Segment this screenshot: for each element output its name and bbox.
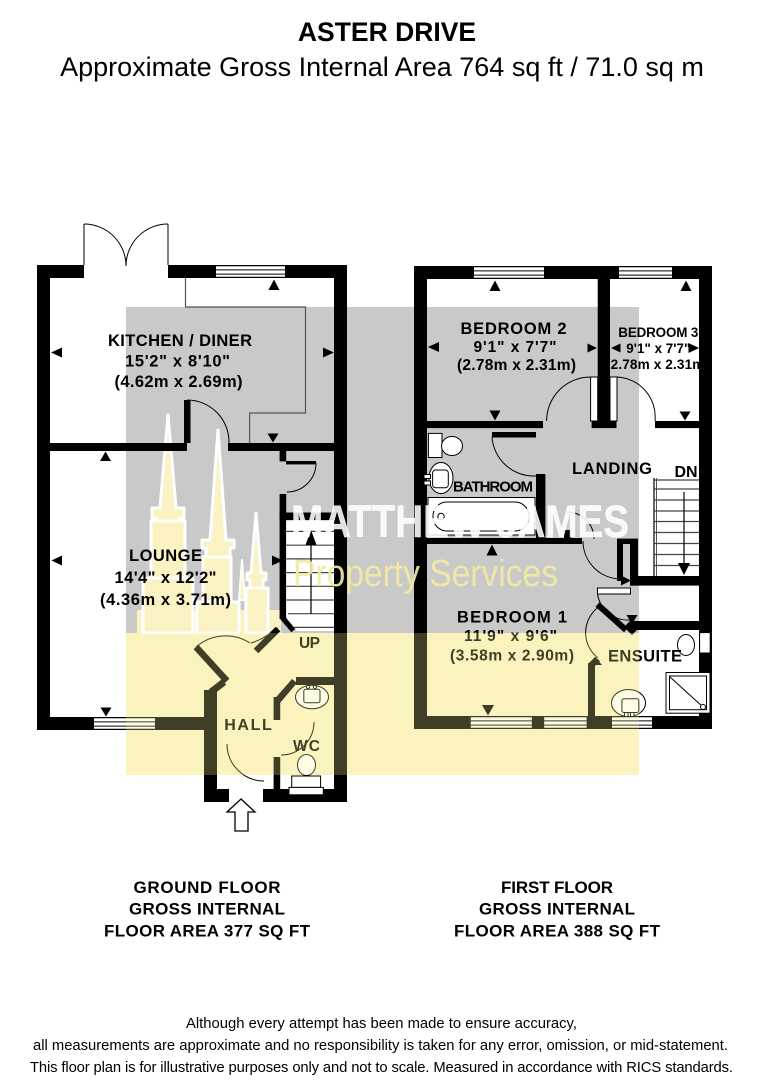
- svg-text:BEDROOM 2: BEDROOM 2: [461, 320, 567, 338]
- svg-text:(4.36m x 3.71m): (4.36m x 3.71m): [100, 591, 231, 609]
- svg-text:BATHROOM: BATHROOM: [453, 479, 533, 496]
- svg-text:MATTHEW JAMES: MATTHEW JAMES: [291, 496, 629, 547]
- svg-text:FLOOR AREA 377 SQ FT: FLOOR AREA 377 SQ FT: [104, 922, 311, 941]
- svg-text:all measurements are approxima: all measurements are approximate and no …: [33, 1038, 728, 1054]
- svg-text:BEDROOM 1: BEDROOM 1: [457, 609, 567, 627]
- svg-text:This floor plan is for illustr: This floor plan is for illustrative purp…: [30, 1060, 733, 1076]
- svg-text:KITCHEN / DINER: KITCHEN / DINER: [108, 332, 252, 350]
- svg-text:ASTER DRIVE: ASTER DRIVE: [298, 17, 476, 47]
- svg-text:15'2" x 8'10": 15'2" x 8'10": [125, 353, 230, 371]
- svg-text:9'1" x 7'7": 9'1" x 7'7": [626, 341, 690, 356]
- svg-text:FLOOR AREA 388 SQ FT: FLOOR AREA 388 SQ FT: [454, 922, 661, 941]
- svg-text:BEDROOM 3: BEDROOM 3: [618, 325, 698, 340]
- svg-text:DN: DN: [674, 464, 697, 481]
- svg-text:Although every attempt has bee: Although every attempt has been made to …: [186, 1016, 577, 1032]
- svg-text:(4.62m x 2.69m): (4.62m x 2.69m): [115, 373, 243, 391]
- svg-text:(2.78m x 2.31m): (2.78m x 2.31m): [457, 357, 576, 374]
- svg-text:LANDING: LANDING: [572, 460, 652, 478]
- svg-text:Approximate Gross Internal Are: Approximate Gross Internal Area 764 sq f…: [60, 52, 704, 82]
- svg-text:14'4" x 12'2": 14'4" x 12'2": [115, 569, 217, 587]
- svg-text:Property Services: Property Services: [293, 553, 558, 595]
- svg-text:LOUNGE: LOUNGE: [129, 547, 202, 565]
- svg-text:GROUND FLOOR: GROUND FLOOR: [134, 878, 281, 897]
- svg-text:9'1" x 7'7": 9'1" x 7'7": [474, 339, 557, 356]
- svg-text:GROSS INTERNAL: GROSS INTERNAL: [479, 900, 635, 919]
- svg-text:FIRST FLOOR: FIRST FLOOR: [501, 878, 613, 897]
- svg-text:GROSS INTERNAL: GROSS INTERNAL: [129, 900, 285, 919]
- svg-text:(2.78m x 2.31m): (2.78m x 2.31m): [606, 357, 709, 372]
